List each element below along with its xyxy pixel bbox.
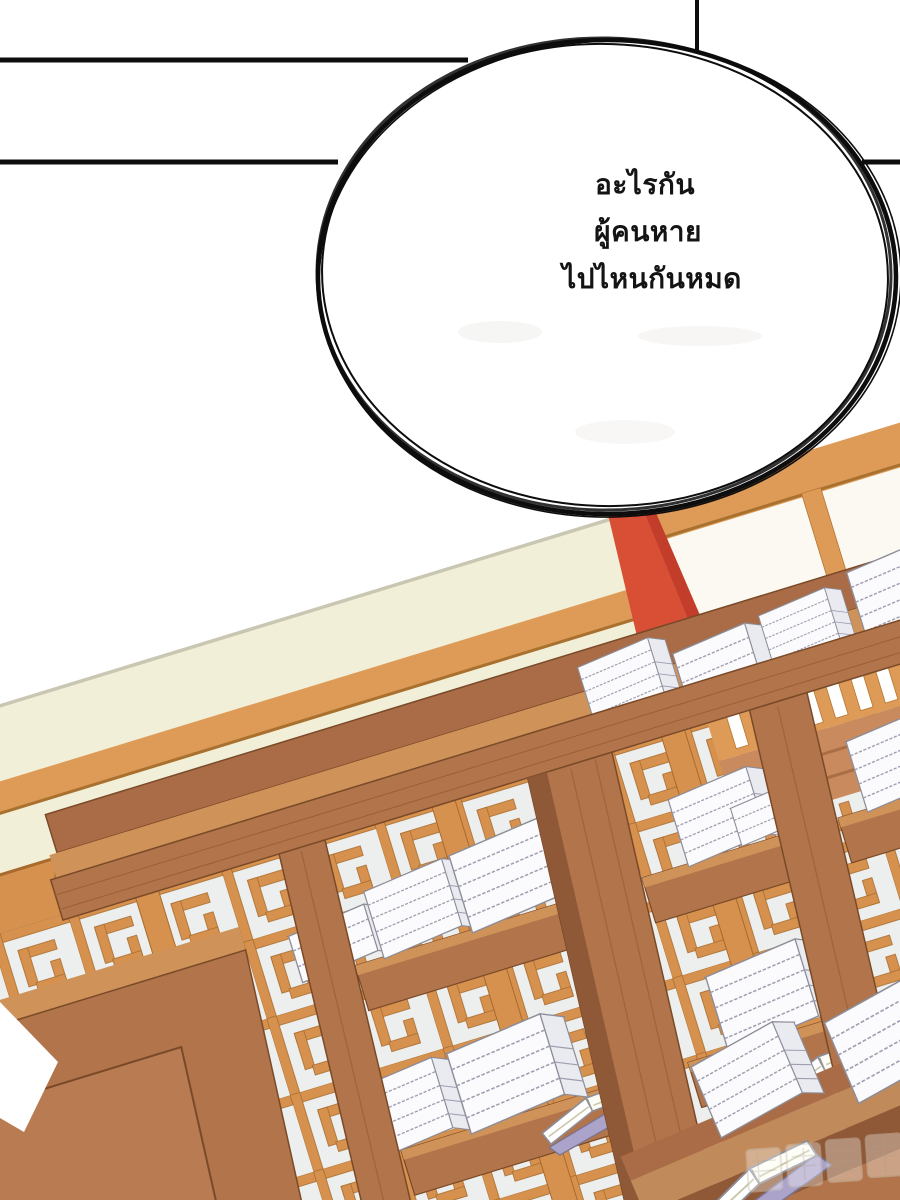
bubble-line-3: ไปไหนกันหมด <box>559 262 742 294</box>
bubble-line-2: ผู้คนหาย <box>594 216 702 249</box>
comic-page: อะไรกัน ผู้คนหาย ไปไหนกันหมด <box>0 0 900 1200</box>
page-illustration: อะไรกัน ผู้คนหาย ไปไหนกันหมด <box>0 0 900 1200</box>
bubble-line-1: อะไรกัน <box>595 168 695 200</box>
